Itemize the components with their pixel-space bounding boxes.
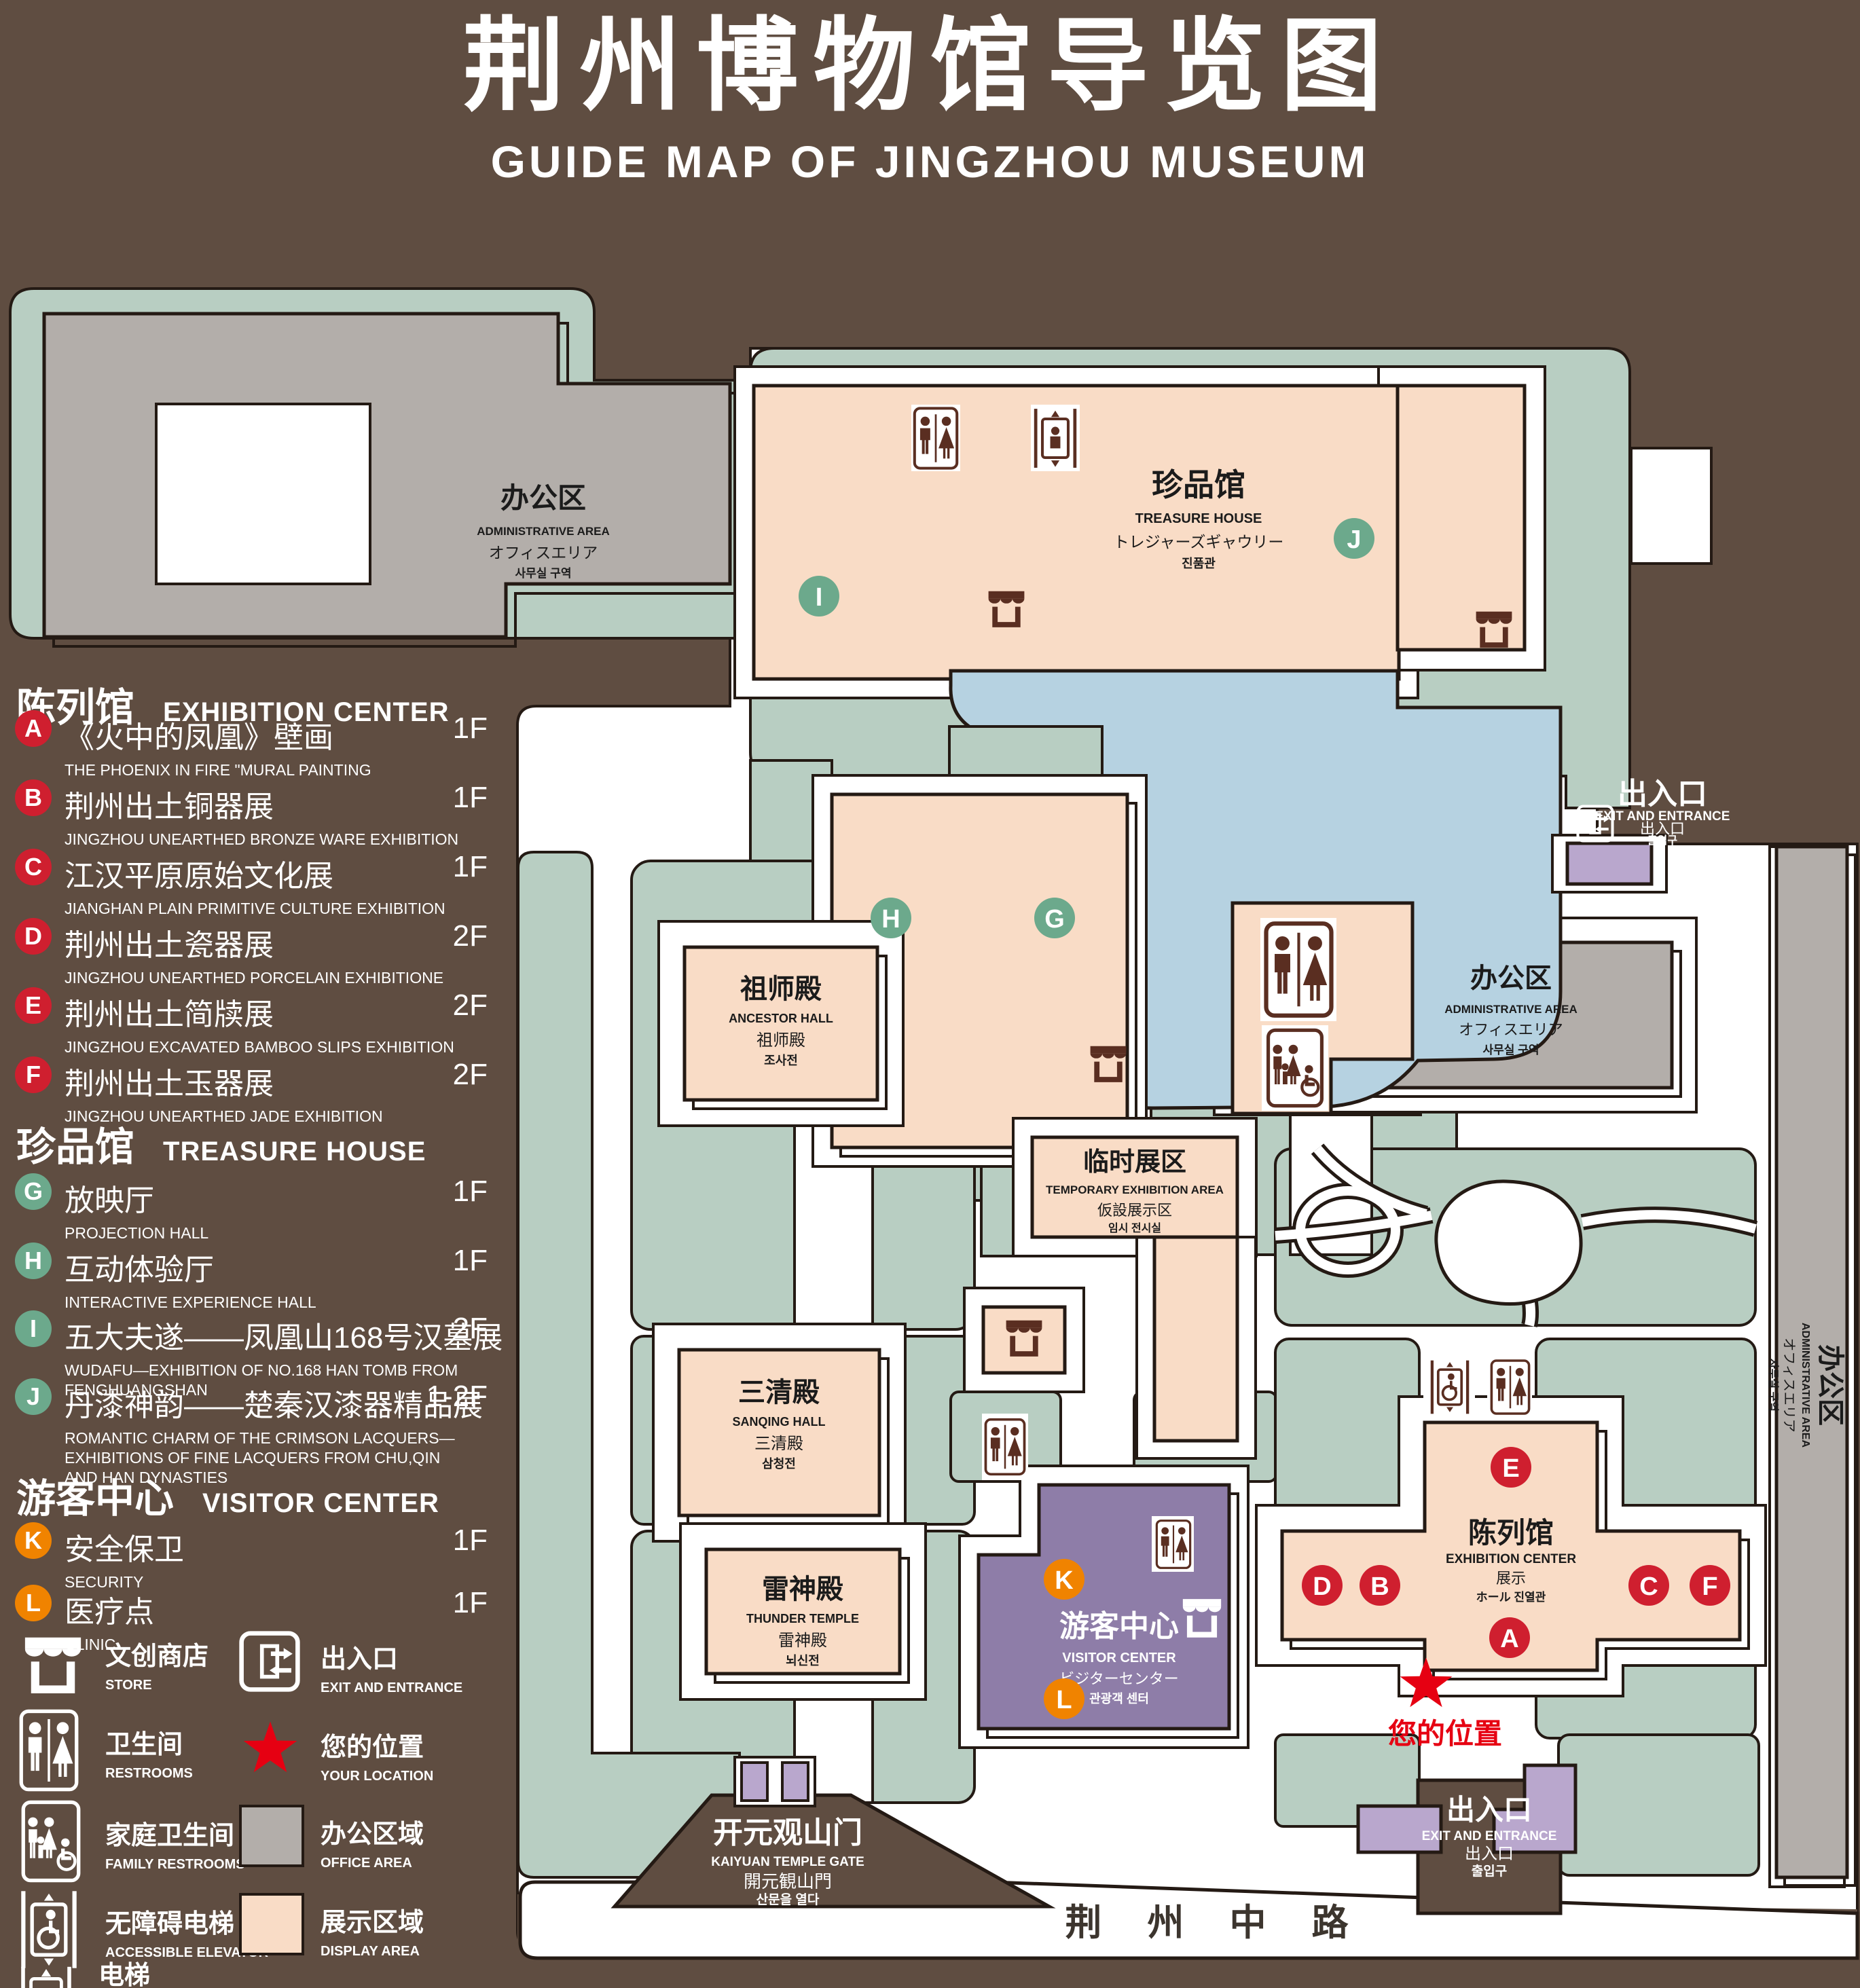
- svg-text:사무실 구역: 사무실 구역: [1767, 1359, 1779, 1412]
- svg-text:ANCESTOR HALL: ANCESTOR HALL: [729, 1012, 833, 1025]
- svg-text:临时展区: 临时展区: [1083, 1148, 1186, 1177]
- badge-l: L: [15, 1585, 52, 1621]
- legend-item-e: E 荆州出土简牍展 JINGZHOU EXCAVATED BAMBOO SLIP…: [15, 990, 503, 1057]
- svg-text:E: E: [1502, 1454, 1519, 1483]
- marker-f: F: [1690, 1565, 1730, 1606]
- svg-text:F: F: [1702, 1572, 1717, 1601]
- badge-b: B: [15, 779, 52, 816]
- svg-text:游客中心: 游客中心: [1059, 1610, 1179, 1643]
- section-visitor-center: 游客中心 VISITOR CENTER: [16, 1467, 439, 1524]
- svg-text:KAIYUAN TEMPLE GATE: KAIYUAN TEMPLE GATE: [711, 1855, 864, 1869]
- svg-text:D: D: [1313, 1572, 1331, 1601]
- svg-text:출입구: 출입구: [1472, 1864, 1507, 1879]
- elevator-icon: [1031, 405, 1080, 471]
- svg-text:SANQING HALL: SANQING HALL: [733, 1415, 826, 1429]
- svg-text:출입구: 출입구: [1647, 834, 1677, 847]
- badge-h: H: [15, 1242, 52, 1279]
- road-label: 荆 州 中 路: [1065, 1902, 1366, 1943]
- legend-item-a: A 《火中的凤凰》壁画 THE PHOENIX IN FIRE "MURAL P…: [15, 713, 503, 780]
- svg-text:ADMINISTRATIVE AREA: ADMINISTRATIVE AREA: [1800, 1323, 1811, 1448]
- badge-e: E: [15, 987, 52, 1024]
- svg-text:H: H: [881, 905, 900, 934]
- marker-a: A: [1489, 1617, 1530, 1658]
- marker-g: G: [1034, 898, 1075, 938]
- gate-pillar-left: [742, 1763, 767, 1801]
- marker-d: D: [1302, 1565, 1343, 1606]
- restroom-icon: [911, 405, 960, 471]
- badge-i: I: [15, 1310, 52, 1347]
- svg-text:관광객 센터: 관광객 센터: [1089, 1692, 1149, 1706]
- badge-f: F: [15, 1056, 52, 1093]
- sanqing-hall-building: [679, 1350, 879, 1515]
- svg-text:G: G: [1044, 905, 1065, 934]
- restroom-icon: [982, 1414, 1028, 1480]
- svg-text:珍品馆: 珍品馆: [1152, 467, 1245, 502]
- svg-text:EXIT AND ENTRANCE: EXIT AND ENTRANCE: [1422, 1829, 1557, 1843]
- badge-d: D: [15, 918, 52, 955]
- garden-pond: [1436, 1181, 1581, 1304]
- badge-c: C: [15, 849, 52, 885]
- marker-c: C: [1628, 1565, 1669, 1606]
- svg-text:조사전: 조사전: [764, 1054, 798, 1067]
- svg-text:산문을 열다: 산문을 열다: [756, 1892, 820, 1907]
- svg-text:出入口: 出入口: [1618, 777, 1707, 811]
- svg-text:L: L: [1056, 1686, 1072, 1714]
- accessible-elevator-icon: [17, 1888, 81, 1972]
- marker-l: L: [1044, 1678, 1084, 1719]
- svg-text:ADMINISTRATIVE AREA: ADMINISTRATIVE AREA: [477, 525, 610, 538]
- svg-text:祖师殿: 祖师殿: [756, 1031, 805, 1050]
- gate-pillar-right: [782, 1763, 808, 1801]
- svg-text:オフィスエリア: オフィスエリア: [1781, 1338, 1796, 1433]
- family-restroom-icon: [17, 1799, 85, 1883]
- svg-text:VISITOR CENTER: VISITOR CENTER: [1062, 1651, 1176, 1665]
- svg-text:임시 전시실: 임시 전시실: [1108, 1222, 1161, 1234]
- lawn-bottom-right: [1558, 1735, 1759, 1875]
- svg-text:B: B: [1370, 1572, 1389, 1601]
- marker-i: I: [799, 576, 839, 616]
- svg-text:三清殿: 三清殿: [754, 1435, 803, 1453]
- svg-text:開元観山門: 開元観山門: [744, 1871, 832, 1892]
- svg-text:사무실 구역: 사무실 구역: [1483, 1044, 1539, 1056]
- marker-j: J: [1334, 518, 1374, 559]
- svg-text:진품관: 진품관: [1182, 557, 1216, 570]
- family-restroom-icon: [1262, 1025, 1328, 1111]
- svg-text:开元观山门: 开元观山门: [713, 1816, 862, 1849]
- svg-text:トレジャーズギャウリー: トレジャーズギャウリー: [1114, 533, 1284, 551]
- elevator-icon: [17, 1964, 75, 1988]
- svg-text:K: K: [1055, 1566, 1074, 1595]
- svg-text:出入口: 出入口: [1465, 1845, 1514, 1863]
- badge-a: A: [15, 710, 52, 747]
- display-area-swatch: [239, 1893, 304, 1955]
- svg-text:办公区: 办公区: [1470, 963, 1552, 993]
- marker-k: K: [1044, 1559, 1084, 1600]
- legend-item-k: K 安全保卫 SECURITY 1F: [15, 1525, 503, 1592]
- svg-text:オフィスエリア: オフィスエリア: [489, 544, 598, 562]
- exit-icon: [238, 1630, 302, 1693]
- restroom-icon: [1260, 918, 1336, 1021]
- svg-text:三清殿: 三清殿: [738, 1378, 820, 1407]
- svg-text:사무실 구역: 사무실 구역: [515, 567, 572, 580]
- your-location-star: [241, 1719, 299, 1778]
- svg-text:EXHIBITION CENTER: EXHIBITION CENTER: [1446, 1552, 1576, 1566]
- svg-text:雷神殿: 雷神殿: [762, 1575, 843, 1604]
- badge-k: K: [15, 1522, 52, 1559]
- accessible-elevator-icon: [1423, 1355, 1475, 1418]
- store-kiosk-building: [983, 1307, 1065, 1373]
- legend-item-g: G 放映厅 PROJECTION HALL 1F: [15, 1176, 503, 1243]
- svg-text:뇌신전: 뇌신전: [786, 1654, 820, 1668]
- legend-item-c: C 江汉平原原始文化展 JIANGHAN PLAIN PRIMITIVE CUL…: [15, 851, 503, 919]
- marker-e: E: [1491, 1447, 1531, 1488]
- svg-text:祖师殿: 祖师殿: [740, 974, 822, 1004]
- svg-text:ホール 진열관: ホール 진열관: [1476, 1591, 1546, 1604]
- svg-text:您的位置: 您的位置: [1388, 1718, 1502, 1750]
- treasure-house-wing: [1398, 386, 1525, 650]
- svg-text:THUNDER TEMPLE: THUNDER TEMPLE: [746, 1612, 859, 1625]
- svg-text:I: I: [816, 583, 823, 612]
- svg-text:办公区: 办公区: [500, 482, 586, 514]
- svg-text:ADMINISTRATIVE AREA: ADMINISTRATIVE AREA: [1444, 1003, 1578, 1016]
- badge-g: G: [15, 1173, 52, 1210]
- svg-text:陈列馆: 陈列馆: [1468, 1517, 1554, 1549]
- office-area-swatch: [239, 1805, 304, 1867]
- legend-item-b: B 荆州出土铜器展 JINGZHOU UNEARTHED BRONZE WARE…: [15, 782, 503, 849]
- svg-text:办公区: 办公区: [1815, 1344, 1845, 1426]
- section-treasure-house: 珍品馆 TREASURE HOUSE: [16, 1115, 426, 1172]
- store-icon: [15, 1635, 91, 1693]
- svg-text:A: A: [1500, 1625, 1518, 1653]
- temporary-exhibition-arm: [1154, 1237, 1237, 1441]
- svg-text:出入口: 出入口: [1446, 1794, 1532, 1826]
- restroom-icon: [1152, 1516, 1194, 1572]
- marker-b: B: [1360, 1565, 1400, 1606]
- svg-text:オフィスエリア: オフィスエリア: [1459, 1021, 1563, 1038]
- restroom-icon: [1487, 1355, 1532, 1418]
- gatehouse-ne: [1567, 843, 1652, 884]
- svg-text:C: C: [1639, 1572, 1658, 1601]
- svg-text:TEMPORARY EXHIBITION AREA: TEMPORARY EXHIBITION AREA: [1046, 1183, 1224, 1196]
- svg-text:仮設展示区: 仮設展示区: [1097, 1202, 1172, 1219]
- legend-item-h: H 互动体验厅 INTERACTIVE EXPERIENCE HALL 1F: [15, 1245, 503, 1312]
- marker-h: H: [871, 898, 911, 938]
- svg-text:TREASURE HOUSE: TREASURE HOUSE: [1135, 511, 1262, 526]
- restroom-icon: [17, 1708, 81, 1792]
- svg-text:삼청전: 삼청전: [762, 1457, 796, 1471]
- svg-text:雷神殿: 雷神殿: [778, 1632, 827, 1650]
- svg-text:展示: 展示: [1496, 1570, 1526, 1587]
- legend-item-d: D 荆州出土瓷器展 JINGZHOU UNEARTHED PORCELAIN E…: [15, 921, 503, 988]
- museum-guide-map-poster: 荆州博物馆导览图 GUIDE MAP OF JINGZHOU MUSEUM: [0, 0, 1860, 1988]
- svg-text:J: J: [1347, 526, 1361, 554]
- badge-j: J: [15, 1378, 52, 1415]
